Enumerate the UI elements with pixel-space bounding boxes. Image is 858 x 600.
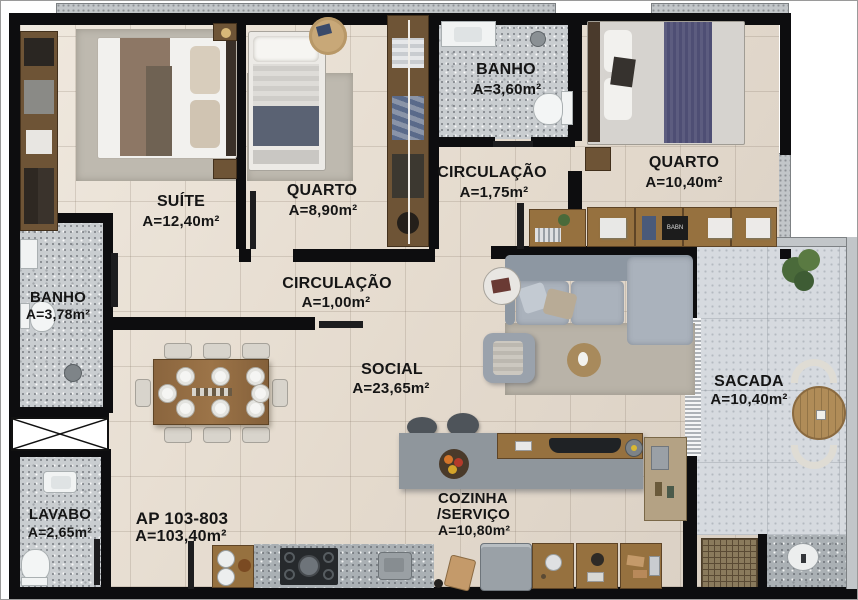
crumbs <box>541 574 546 579</box>
plate <box>211 367 230 386</box>
book-on-rug <box>316 23 332 36</box>
plate <box>246 367 265 386</box>
island-sink <box>549 438 621 453</box>
wall-banho2-bottom <box>9 407 109 417</box>
quarto1-round-rug <box>309 17 347 55</box>
label-banho1-area: A=3,60m² <box>473 81 542 98</box>
lamp <box>221 28 231 38</box>
wall-quarto1-bottom <box>293 249 435 262</box>
laundry-tank <box>787 543 819 571</box>
quarto1-sheet <box>253 64 319 106</box>
floor-plan: BABN <box>0 0 858 600</box>
plate <box>251 384 270 403</box>
label-circulacao1-area: A=1,75m² <box>460 184 529 201</box>
cooktop <box>280 548 338 585</box>
plate <box>176 399 195 418</box>
island-soap <box>515 441 532 451</box>
label-lavabo-area: A=2,65m² <box>28 524 92 540</box>
label-quarto1-area: A=8,90m² <box>289 202 358 219</box>
wall-banho1-bottom-a <box>439 137 495 147</box>
sacada-rail-right <box>846 237 858 589</box>
suite-bed-throw <box>146 66 172 156</box>
cabinet-2 <box>576 543 618 589</box>
plate <box>176 367 195 386</box>
books-on-side-table <box>491 278 511 294</box>
wall-banho2-right <box>103 213 113 413</box>
label-banho2-name: BANHO <box>30 289 86 306</box>
armchair-seat <box>493 341 523 375</box>
door-banho1 <box>493 141 533 147</box>
service-deck-grid <box>701 538 758 589</box>
quarto1-bed <box>248 31 326 171</box>
label-banho1-name: BANHO <box>476 61 536 79</box>
shelf-item-blue <box>642 216 656 240</box>
fruit-yellow <box>448 465 457 474</box>
wood-piece-2 <box>633 570 647 578</box>
wall-circ2-bottom <box>239 317 315 330</box>
label-suite-name: SUÍTE <box>157 193 205 211</box>
lavabo-sink <box>43 471 77 493</box>
label-quarto2-name: QUARTO <box>649 154 719 172</box>
pot-white <box>545 554 562 571</box>
sofa-chaise <box>627 257 693 345</box>
sink-basin <box>384 558 404 572</box>
burner-4 <box>323 569 334 580</box>
books-on-sideboard <box>535 228 561 242</box>
quarto2-throw <box>664 22 712 143</box>
coffee-table-decor <box>578 352 588 366</box>
basin <box>51 476 71 489</box>
wall-left <box>9 13 20 599</box>
dining-chair-left <box>135 379 151 407</box>
side-table <box>483 267 521 305</box>
wardrobe-item-gray <box>24 80 54 114</box>
leaf-2 <box>798 249 820 271</box>
banho1-sink <box>441 21 496 47</box>
dining-chair-right <box>272 379 288 407</box>
fridge <box>480 543 532 591</box>
label-sacada-name: SACADA <box>714 373 784 391</box>
basin <box>454 27 482 42</box>
bowl <box>238 559 251 572</box>
label-cozinha-line2: /SERVIÇO <box>437 506 510 523</box>
lavabo-toilet-tank <box>21 577 48 586</box>
dining-chair-top-3 <box>242 343 270 359</box>
counter-sink <box>378 552 412 580</box>
label-suite-area: A=12,40m² <box>142 213 219 230</box>
wall-suite-quarto1 <box>236 13 246 249</box>
quarto1-footboard <box>253 150 319 164</box>
shelf-item-folded <box>600 218 626 238</box>
quarto2-dark-pillow <box>610 57 636 88</box>
shelf-item-black: BABN <box>662 216 688 240</box>
suite-pillow-2 <box>190 100 220 148</box>
label-social-name: SOCIAL <box>361 361 423 379</box>
plate <box>211 399 230 418</box>
closet-rail <box>408 20 410 244</box>
suite-nightstand-top <box>213 23 237 41</box>
cabinet-plates <box>212 545 254 588</box>
wood-piece-1 <box>626 555 644 567</box>
label-apartment-area: A=103,40m² <box>135 528 226 546</box>
door-quarto1 <box>250 191 256 249</box>
stacked-plates-1 <box>217 550 235 568</box>
label-lavabo-name: LAVABO <box>29 506 91 523</box>
wall-right-top <box>780 13 791 155</box>
plate <box>158 384 177 403</box>
wardrobe-item-shoes <box>24 168 54 224</box>
island-burner <box>625 439 643 457</box>
suite-pillow-1 <box>190 46 220 94</box>
shelf-item-white-2 <box>746 218 770 238</box>
fruit-orange <box>444 455 453 464</box>
burner-1 <box>284 552 295 563</box>
label-circulacao2-name: CIRCULAÇÃO <box>282 275 392 293</box>
suite-bed <box>97 37 237 159</box>
dish <box>587 572 604 582</box>
wardrobe-item-white <box>26 130 52 154</box>
appliance-gray <box>651 446 669 470</box>
table-center-item <box>816 410 826 420</box>
shelf-item-white-1 <box>708 218 732 238</box>
banho2-sink <box>20 239 38 269</box>
coffee-table <box>567 343 601 377</box>
shaft-x-marks <box>13 419 107 449</box>
duct-shaft <box>11 417 109 451</box>
burner-3 <box>323 552 334 563</box>
quarto2-shelf: BABN <box>587 207 777 247</box>
kettle <box>434 579 443 588</box>
hall-sideboard <box>529 209 586 247</box>
quarto1-blanket <box>253 106 319 146</box>
label-social-area: A=23,65m² <box>352 380 429 397</box>
wall-quarto1-right <box>429 13 439 249</box>
dining-chair-bottom-1 <box>164 427 192 443</box>
quarto1-closet <box>387 15 429 247</box>
quarto2-nightstand <box>585 147 611 171</box>
suite-nightstand-bottom <box>213 159 237 179</box>
sofa-cushion-2 <box>571 281 624 325</box>
dining-chair-top-1 <box>164 343 192 359</box>
suite-headboard <box>226 38 236 156</box>
flame-dot <box>631 445 637 451</box>
quarto2-bed <box>587 21 745 145</box>
label-sacada-area: A=10,40m² <box>710 391 787 408</box>
label-apartment-id: AP 103-803 <box>136 509 228 529</box>
tall-cabinet <box>644 437 687 521</box>
pot-dark <box>591 553 604 566</box>
label-circulacao1-name: CIRCULAÇÃO <box>437 164 547 182</box>
fruit-bowl <box>439 449 469 479</box>
plant-on-sideboard <box>558 214 570 226</box>
label-quarto1-name: QUARTO <box>287 182 357 200</box>
wall-quarto1-bottom-jamb <box>239 249 251 262</box>
cabinet-3 <box>620 543 662 589</box>
wall-lavabo-right <box>101 449 111 587</box>
quarto2-headboard <box>588 22 600 142</box>
label-circulacao2-area: A=1,00m² <box>302 294 371 311</box>
label-cozinha-area: A=10,80m² <box>438 522 510 538</box>
door-quarto2 <box>517 203 524 249</box>
label-cozinha-line1: COZINHA <box>438 490 508 507</box>
dining-chair-top-2 <box>203 343 231 359</box>
banho1-shower-head <box>530 31 546 47</box>
table-centerpiece <box>192 388 232 396</box>
wardrobe-item-dark <box>24 38 54 66</box>
label-quarto2-area: A=10,40m² <box>645 174 722 191</box>
wall-hall-bottom <box>113 317 239 330</box>
dining-chair-bottom-3 <box>242 427 270 443</box>
balcony-table <box>792 386 846 440</box>
burner-2 <box>284 569 295 580</box>
armchair <box>483 333 535 383</box>
steel-item <box>649 556 660 576</box>
cabinet-1 <box>532 543 574 589</box>
bottle-2 <box>667 486 674 498</box>
wall-service-divider <box>758 534 767 587</box>
door-lavabo <box>94 539 100 585</box>
burner-center <box>298 555 320 577</box>
drain-dot <box>801 554 806 563</box>
door-servico <box>188 541 194 589</box>
wall-bottom <box>9 587 858 599</box>
dining-chair-bottom-2 <box>203 427 231 443</box>
suite-wardrobe <box>20 31 58 231</box>
bottle-1 <box>655 482 662 496</box>
door-suite <box>111 253 118 307</box>
banho2-shower-drain <box>64 364 82 382</box>
door-circulacao2 <box>319 321 363 328</box>
leaf-3 <box>794 271 814 291</box>
balcony-plant <box>776 249 828 299</box>
stacked-plates-2 <box>217 568 235 586</box>
label-banho2-area: A=3,78m² <box>26 306 90 322</box>
